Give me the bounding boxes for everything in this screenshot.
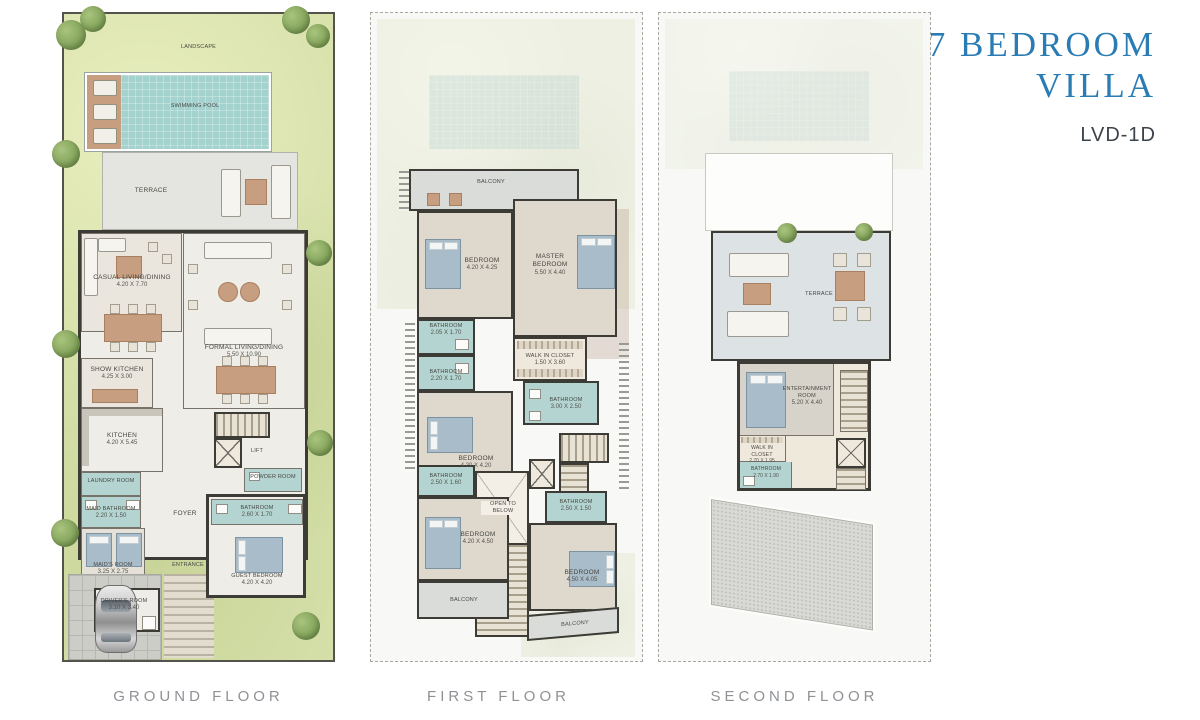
balcony-left-label: BALCONY — [431, 597, 497, 604]
kitchen-island — [92, 389, 138, 403]
roof-outline — [705, 153, 893, 231]
bed — [427, 417, 473, 453]
pillow — [89, 536, 109, 544]
powder-room-label: POWDER ROOM — [244, 474, 302, 481]
sun-lounger — [93, 104, 117, 120]
pillow — [444, 242, 458, 250]
bathroom-4-label: BATHROOM 2.50 X 1.60 — [417, 473, 475, 488]
chair — [833, 307, 847, 321]
walk-in-closet-label: WALK IN CLOSET 2.70 X 1.95 — [740, 445, 784, 465]
drivers-room-label: DRIVER'S ROOM 3.10 X 3.40 — [94, 598, 154, 613]
armchair — [188, 264, 198, 274]
round-table — [218, 282, 238, 302]
chair — [857, 307, 871, 321]
title-line-1: 7 BEDROOM — [928, 24, 1156, 65]
terrace-label: TERRACE — [121, 187, 181, 195]
landscape-label: LANDSCAPE — [64, 44, 333, 51]
sofa — [221, 169, 241, 217]
pillow — [238, 540, 246, 555]
entertainment-room-label: ENTERTAINMENT ROOM 5.20 X 4.40 — [780, 386, 834, 408]
guest-bathroom-label: BATHROOM 2.60 X 1.70 — [211, 505, 303, 520]
pillow — [581, 238, 596, 246]
balcony-left: BALCONY — [417, 581, 509, 619]
walk-in-closet: WALK IN CLOSET 2.70 X 1.95 — [740, 436, 786, 462]
chair — [222, 394, 232, 404]
outdoor-table — [743, 283, 771, 305]
pillow — [444, 520, 458, 528]
chair — [128, 304, 138, 314]
bathroom-5-label: BATHROOM 2.50 X 1.50 — [545, 499, 607, 514]
formal-living-label: FORMAL LIVING/DINING 5.50 X 10.90 — [192, 344, 296, 360]
terrace: TERRACE — [711, 231, 891, 361]
sun-lounger — [93, 128, 117, 144]
sun-lounger — [93, 80, 117, 96]
pool-surround: SWIMMING POOL — [84, 72, 272, 152]
ghost-pool — [729, 71, 869, 141]
pillow — [238, 556, 246, 571]
bedroom-4-label: BEDROOM 4.50 X 4.05 — [551, 569, 613, 585]
tree-icon — [282, 6, 310, 34]
bedroom-3-label: BEDROOM 4.20 X 4.50 — [449, 531, 507, 547]
entertainment-room: ENTERTAINMENT ROOM 5.20 X 4.40 — [740, 364, 834, 436]
ghost-pool — [429, 75, 579, 149]
sofa — [204, 242, 272, 259]
chair — [833, 253, 847, 267]
lift-label: LIFT — [242, 448, 272, 455]
bedroom-2-label: BEDROOM 4.20 X 4.20 — [445, 455, 507, 471]
armchair — [282, 264, 292, 274]
bathroom-3: BATHROOM 3.00 X 2.50 — [523, 381, 599, 425]
walk-in-closet-label: WALK IN CLOSET 1.50 X 3.60 — [517, 353, 583, 368]
entrance-label: ENTRANCE — [162, 562, 214, 569]
floorplan-sheet: 7 BEDROOM VILLA LVD-1D LANDSCAPE SWIMMIN… — [0, 0, 1200, 720]
first-floor-plan: BALCONY BEDROOM 4.20 X 4.25 MASTER BEDRO — [370, 12, 643, 662]
armchair — [282, 300, 292, 310]
second-floor-label: SECOND FLOOR — [658, 688, 931, 705]
side-louver — [405, 323, 415, 473]
armchair — [188, 300, 198, 310]
dining-table — [104, 314, 162, 342]
sink — [529, 411, 541, 421]
sofa — [98, 238, 126, 252]
wardrobe — [741, 437, 783, 443]
round-table — [240, 282, 260, 302]
bedroom-1: BEDROOM 4.20 X 4.25 — [417, 211, 513, 319]
pillow — [429, 520, 443, 528]
terrace: TERRACE — [102, 152, 298, 230]
chair — [128, 342, 138, 352]
bed — [235, 537, 283, 573]
outdoor-sofa — [729, 253, 789, 277]
outdoor-chair — [449, 193, 462, 206]
shower — [142, 616, 156, 630]
pillow — [767, 375, 783, 384]
sofa — [271, 165, 291, 219]
second-floor-plan: TERRACE ENTERTAINMENT ROOM 5.20 X 4.40 — [658, 12, 931, 662]
tree-icon — [80, 6, 106, 32]
staircase — [559, 433, 609, 463]
car-icon — [95, 585, 137, 653]
pool-deck — [87, 75, 121, 149]
tree-icon — [52, 330, 80, 358]
casual-living-label: CASUAL LIVING/DINING 4.20 X 7.70 — [84, 274, 180, 290]
tree-icon — [52, 140, 80, 168]
bedroom-1-label: BEDROOM 4.20 X 4.25 — [451, 257, 513, 273]
roof-slab — [711, 499, 873, 631]
master-bedroom: MASTER BEDROOM 5.50 X 4.40 — [513, 199, 617, 337]
bathroom-1-label: BATHROOM 2.05 X 1.70 — [417, 323, 475, 338]
page-title: 7 BEDROOM VILLA — [928, 24, 1156, 107]
first-floor-label: FIRST FLOOR — [362, 688, 635, 705]
staircase — [840, 370, 868, 432]
terrace-label: TERRACE — [791, 291, 847, 298]
chair — [110, 342, 120, 352]
pillow — [750, 375, 766, 384]
outdoor-table — [245, 179, 267, 205]
unit-code: LVD-1D — [1080, 124, 1156, 147]
bed — [577, 235, 615, 289]
staircase — [214, 412, 270, 438]
bathroom-label: BATHROOM 2.70 X 1.90 — [740, 466, 792, 479]
chair — [146, 342, 156, 352]
tree-icon — [307, 430, 333, 456]
armchair — [162, 254, 172, 264]
pillow — [429, 242, 443, 250]
pillow — [430, 436, 438, 450]
bathroom-3-label: BATHROOM 3.00 X 2.50 — [537, 397, 595, 412]
chair — [240, 394, 250, 404]
bedroom-4: BEDROOM 4.50 X 4.05 — [529, 523, 617, 611]
pillow — [119, 536, 139, 544]
swimming-pool: SWIMMING POOL — [121, 75, 269, 149]
pillow — [597, 238, 612, 246]
balcony-label: BALCONY — [451, 179, 531, 186]
bathroom: BATHROOM 2.70 X 1.90 — [740, 462, 792, 488]
toilet — [455, 339, 469, 350]
tree-icon — [306, 240, 332, 266]
laundry-label: LAUNDRY ROOM — [81, 478, 141, 485]
plant-icon — [777, 223, 797, 243]
guest-bedroom-label: GUEST BEDROOM 4.20 X 4.20 — [211, 573, 303, 588]
balcony-louver — [399, 171, 409, 211]
walk-in-closet: WALK IN CLOSET 1.50 X 3.60 — [513, 337, 587, 381]
pool-label: SWIMMING POOL — [165, 103, 225, 110]
tree-icon — [292, 612, 320, 640]
chair — [110, 304, 120, 314]
open-to-below-label: OPEN TO BELOW — [481, 501, 525, 515]
armchair — [148, 242, 158, 252]
lift — [214, 438, 242, 468]
staircase — [836, 468, 866, 490]
master-bedroom-label: MASTER BEDROOM 5.50 X 4.40 — [519, 253, 581, 278]
outdoor-sofa — [727, 311, 789, 337]
ground-floor-plan: LANDSCAPE SWIMMING POOL TERRACE — [62, 12, 335, 662]
pillow — [430, 421, 438, 435]
wardrobe — [517, 369, 583, 377]
plant-icon — [855, 223, 873, 241]
maid-bathroom-label: MAID BATHROOM 2.20 X 1.50 — [81, 506, 141, 521]
guest-wing: BATHROOM 2.60 X 1.70 GUEST BEDROOM 4.20 … — [206, 494, 306, 598]
ground-floor-label: GROUND FLOOR — [62, 688, 335, 705]
pillow — [606, 555, 614, 569]
wardrobe — [517, 341, 583, 349]
chair — [857, 253, 871, 267]
sofa — [204, 328, 272, 345]
title-line-2: VILLA — [928, 65, 1156, 106]
show-kitchen-label: SHOW KITCHEN 4.25 X 3.00 — [82, 366, 152, 382]
outdoor-chair — [427, 193, 440, 206]
tree-icon — [51, 519, 79, 547]
second-floor-structure: ENTERTAINMENT ROOM 5.20 X 4.40 WALK IN C… — [737, 361, 871, 491]
lift — [836, 438, 866, 468]
bathroom-2-label: BATHROOM 2.20 X 1.70 — [417, 369, 475, 384]
kitchen-label: KITCHEN 4.20 X 5.45 — [86, 432, 158, 448]
kitchen-counter — [82, 409, 162, 416]
chair — [146, 304, 156, 314]
dining-table — [216, 366, 276, 394]
maids-room-label: MAID'S ROOM 3.25 X 2.75 — [81, 562, 145, 577]
chair — [258, 394, 268, 404]
lift — [529, 459, 555, 489]
foyer-label: FOYER — [160, 510, 210, 518]
side-louver — [619, 343, 629, 493]
balcony-right-label: BALCONY — [545, 618, 605, 630]
